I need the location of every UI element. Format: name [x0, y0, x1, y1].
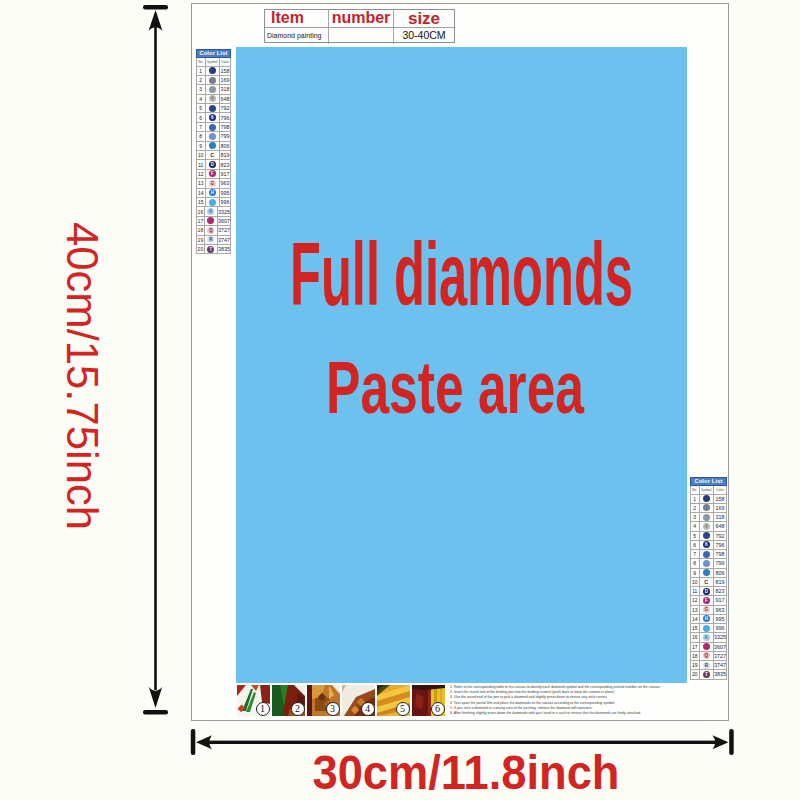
- svg-text:Paste area: Paste area: [326, 346, 585, 429]
- svg-text:Full diamonds: Full diamonds: [290, 224, 633, 324]
- svg-text:30cm/11.8inch: 30cm/11.8inch: [313, 746, 620, 799]
- svg-text:40cm/15.75inch: 40cm/15.75inch: [58, 222, 107, 530]
